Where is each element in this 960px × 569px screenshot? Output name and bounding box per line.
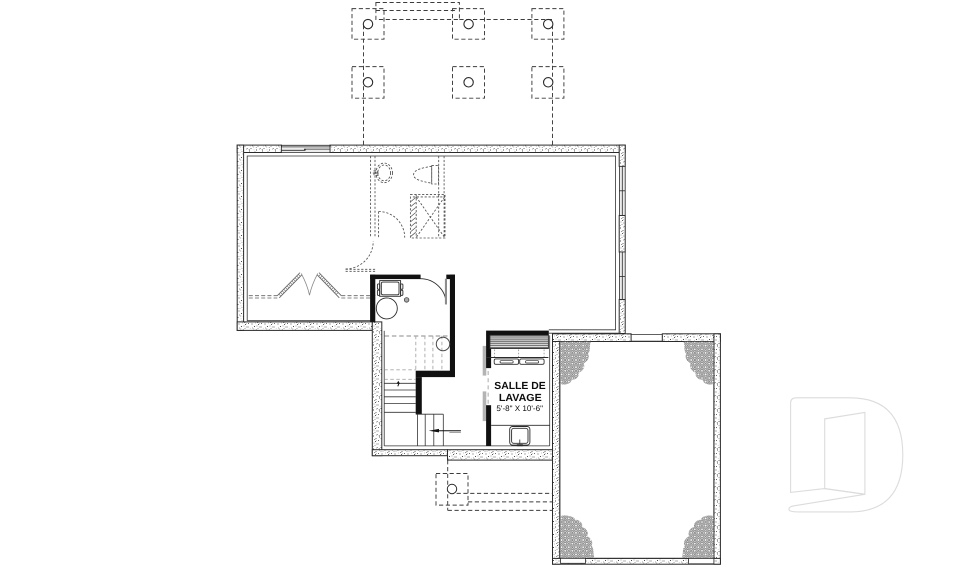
svg-text:SALLE DE: SALLE DE — [494, 381, 546, 392]
svg-text:5'-8" X 10'-6": 5'-8" X 10'-6" — [496, 404, 543, 413]
svg-text:LAVAGE: LAVAGE — [499, 393, 542, 404]
